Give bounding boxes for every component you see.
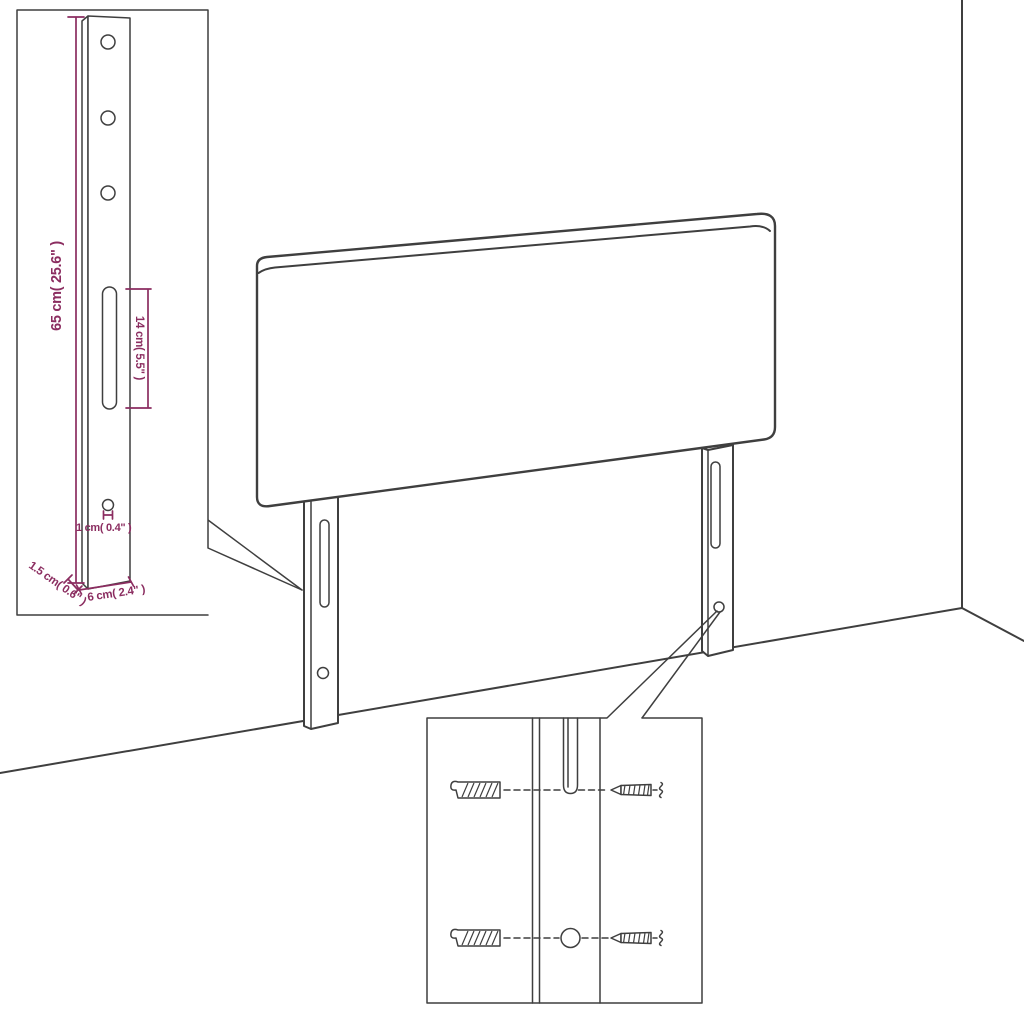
dimension-hole-label: 1 cm( 0.4" ) [76, 522, 132, 534]
wall-plug-icon [451, 781, 500, 798]
dimension-height-label: 65 cm( 25.6" ) [49, 241, 65, 331]
diagram-svg: 65 cm( 25.6" ) 14 cm( 5.5" ) 1 cm( 0.4" … [0, 0, 1024, 1024]
bracket-detail-inset: 65 cm( 25.6" ) 14 cm( 5.5" ) 1 cm( 0.4" … [17, 10, 208, 615]
dimension-slot-label: 14 cm( 5.5" ) [133, 316, 145, 381]
left-leg-bracket [304, 494, 338, 729]
wall-plug-icon [451, 929, 500, 946]
assembly-diagram: 65 cm( 25.6" ) 14 cm( 5.5" ) 1 cm( 0.4" … [0, 0, 1024, 1024]
bracket-front-view [82, 16, 130, 589]
callout-wedge-left [208, 520, 302, 590]
mounting-detail-inset [427, 718, 702, 1003]
headboard-panel [257, 214, 775, 507]
right-leg-bracket [702, 445, 733, 656]
